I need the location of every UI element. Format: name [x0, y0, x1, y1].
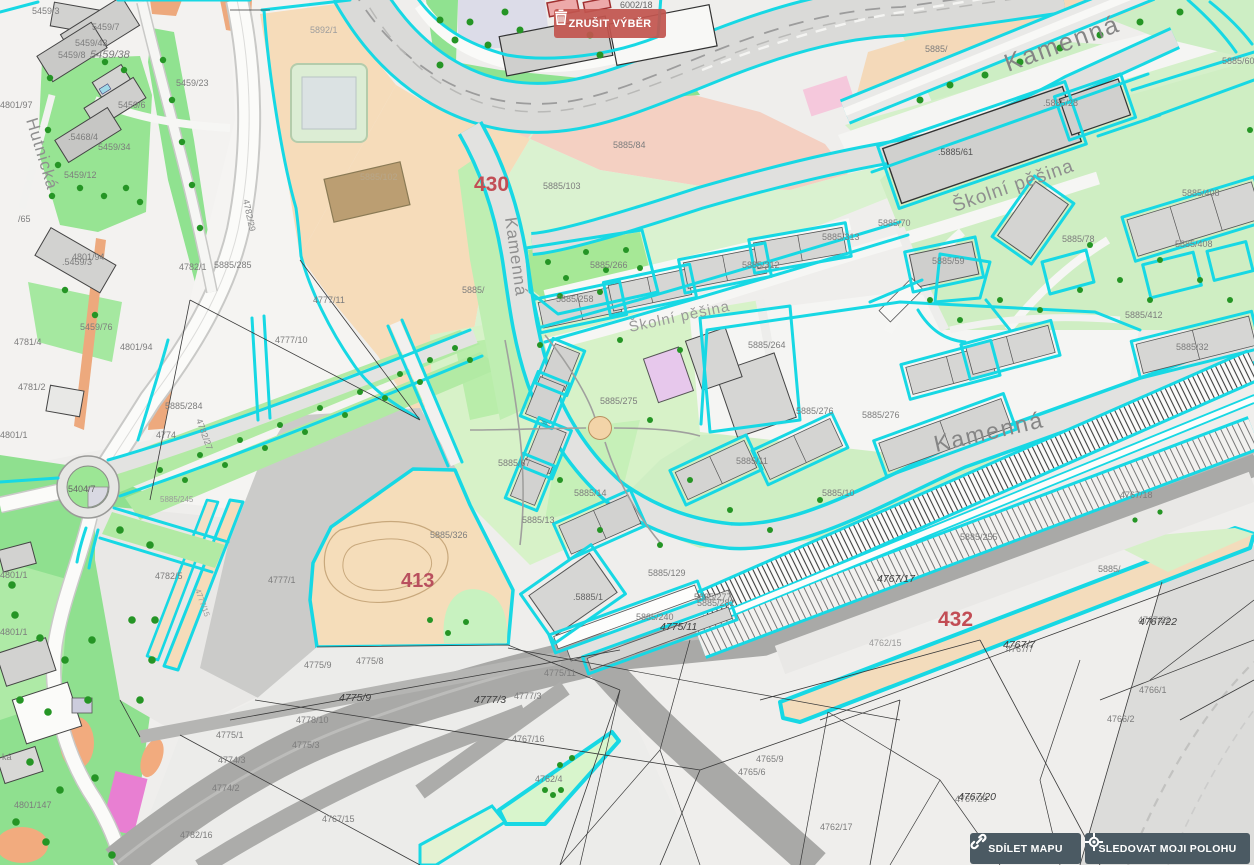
svg-text:5459/3: 5459/3: [32, 6, 60, 16]
svg-text:.5459/3: .5459/3: [62, 257, 92, 267]
svg-text:432: 432: [938, 608, 973, 631]
svg-text:5885/103: 5885/103: [543, 181, 581, 191]
svg-text:4767/17: 4767/17: [877, 573, 916, 585]
svg-text:4762/4: 4762/4: [535, 774, 563, 784]
svg-text:5459/76: 5459/76: [80, 322, 113, 332]
svg-text:.5885/1: .5885/1: [573, 592, 603, 602]
svg-text:.5885/28: .5885/28: [1043, 98, 1078, 108]
svg-text:5885/102: 5885/102: [360, 172, 398, 182]
svg-text:5885/129: 5885/129: [648, 568, 686, 578]
svg-text:4781/2: 4781/2: [18, 382, 46, 392]
svg-text:4767/7: 4767/7: [1003, 639, 1036, 651]
svg-text:4801/147: 4801/147: [14, 800, 52, 810]
svg-text:4801/1: 4801/1: [0, 570, 28, 580]
svg-text:5885/60: 5885/60: [1222, 56, 1254, 66]
svg-text:5885/276: 5885/276: [796, 406, 834, 416]
svg-text:5459/8: 5459/8: [58, 50, 86, 60]
svg-text:5885/264: 5885/264: [748, 340, 786, 350]
svg-text:4777/3: 4777/3: [514, 691, 542, 701]
svg-text:5892/1: 5892/1: [310, 25, 338, 35]
svg-text:4777/11: 4777/11: [313, 295, 345, 305]
svg-text:413: 413: [401, 570, 434, 592]
svg-text:4777/1: 4777/1: [268, 575, 296, 585]
svg-text:4775/8: 4775/8: [356, 656, 384, 666]
svg-text:4775/3: 4775/3: [292, 740, 320, 750]
svg-text:5885/: 5885/: [462, 285, 485, 295]
svg-text:4801/97: 4801/97: [0, 100, 33, 110]
svg-text:4767/18: 4767/18: [1120, 490, 1153, 500]
svg-text:.5885/61: .5885/61: [938, 147, 973, 157]
svg-text:4774/3: 4774/3: [218, 755, 246, 765]
svg-text:5885/32: 5885/32: [1176, 342, 1209, 352]
svg-text:5885/313: 5885/313: [822, 232, 860, 242]
svg-text:5885/284: 5885/284: [165, 401, 203, 411]
svg-text:4767/16: 4767/16: [512, 734, 545, 744]
svg-text:4775/9: 4775/9: [339, 692, 371, 704]
svg-text:5885/258: 5885/258: [556, 294, 594, 304]
svg-text:4765/6: 4765/6: [738, 767, 766, 777]
svg-text:4765/9: 4765/9: [756, 754, 784, 764]
svg-text:5459/12: 5459/12: [64, 170, 97, 180]
svg-text:/65: /65: [18, 214, 31, 224]
svg-text:5885/78: 5885/78: [1062, 234, 1095, 244]
svg-text:5885/10: 5885/10: [822, 488, 855, 498]
svg-text:4774: 4774: [156, 430, 176, 440]
svg-text:5885/255: 5885/255: [960, 532, 998, 542]
svg-text:4801/94: 4801/94: [120, 342, 153, 352]
svg-text:5459/6: 5459/6: [118, 100, 146, 110]
svg-text:5885/84: 5885/84: [613, 140, 646, 150]
svg-text:5459/43: 5459/43: [75, 38, 108, 48]
svg-text:5885/408: 5885/408: [1175, 239, 1213, 249]
svg-text:5885/312: 5885/312: [742, 260, 780, 270]
svg-text:5885/14: 5885/14: [574, 488, 607, 498]
svg-text:4801/1: 4801/1: [0, 430, 28, 440]
svg-text:430: 430: [474, 173, 509, 196]
svg-text:4801/1: 4801/1: [0, 627, 28, 637]
svg-text:4766/1: 4766/1: [1139, 685, 1167, 695]
svg-text:4778/10: 4778/10: [296, 715, 329, 725]
svg-text:5459/38: 5459/38: [90, 49, 131, 61]
svg-text:5885/408: 5885/408: [1182, 188, 1220, 198]
svg-text:5885/245: 5885/245: [160, 495, 194, 504]
svg-text:4762/17: 4762/17: [820, 822, 853, 832]
svg-text:5459/23: 5459/23: [176, 78, 209, 88]
svg-text:4777/10: 4777/10: [275, 335, 308, 345]
svg-text:5885/59: 5885/59: [932, 256, 965, 266]
svg-text:4766/2: 4766/2: [1107, 714, 1135, 724]
svg-text:5885/13: 5885/13: [522, 515, 555, 525]
svg-text:ká: ká: [2, 752, 12, 762]
svg-text:4767/20: 4767/20: [958, 791, 996, 803]
svg-text:4767/22: 4767/22: [1139, 616, 1177, 628]
svg-text:4762/15: 4762/15: [869, 638, 902, 648]
svg-text:5404/7: 5404/7: [68, 484, 96, 494]
svg-text:4775/1: 4775/1: [216, 730, 244, 740]
svg-text:5885/285: 5885/285: [214, 260, 252, 270]
svg-text:4775/11: 4775/11: [660, 621, 697, 633]
svg-text:5885/275: 5885/275: [600, 396, 638, 406]
svg-text:5885/: 5885/: [1098, 564, 1121, 574]
svg-text:.5468/4: .5468/4: [68, 132, 98, 142]
svg-text:5885/326: 5885/326: [430, 530, 468, 540]
svg-text:4782/1: 4782/1: [179, 262, 207, 272]
svg-text:5885/266: 5885/266: [590, 260, 628, 270]
svg-text:4775/11: 4775/11: [544, 668, 576, 678]
svg-text:4782/5: 4782/5: [155, 571, 183, 581]
svg-text:5459/34: 5459/34: [98, 142, 131, 152]
svg-text:5459/7: 5459/7: [92, 22, 120, 32]
svg-text:5885/276: 5885/276: [862, 410, 900, 420]
svg-text:4775/9: 4775/9: [304, 660, 332, 670]
svg-text:5885/: 5885/: [925, 44, 948, 54]
svg-text:5885/11: 5885/11: [736, 456, 768, 466]
svg-text:4777/3: 4777/3: [474, 694, 506, 706]
svg-text:5885/67: 5885/67: [498, 458, 531, 468]
svg-text:5885/412: 5885/412: [1125, 310, 1163, 320]
svg-text:4782/16: 4782/16: [180, 830, 213, 840]
svg-text:4781/4: 4781/4: [14, 337, 42, 347]
svg-text:5885/282: 5885/282: [697, 598, 735, 608]
svg-text:5885/70: 5885/70: [878, 218, 911, 228]
svg-text:4774/2: 4774/2: [212, 783, 240, 793]
svg-text:4767/15: 4767/15: [322, 814, 355, 824]
